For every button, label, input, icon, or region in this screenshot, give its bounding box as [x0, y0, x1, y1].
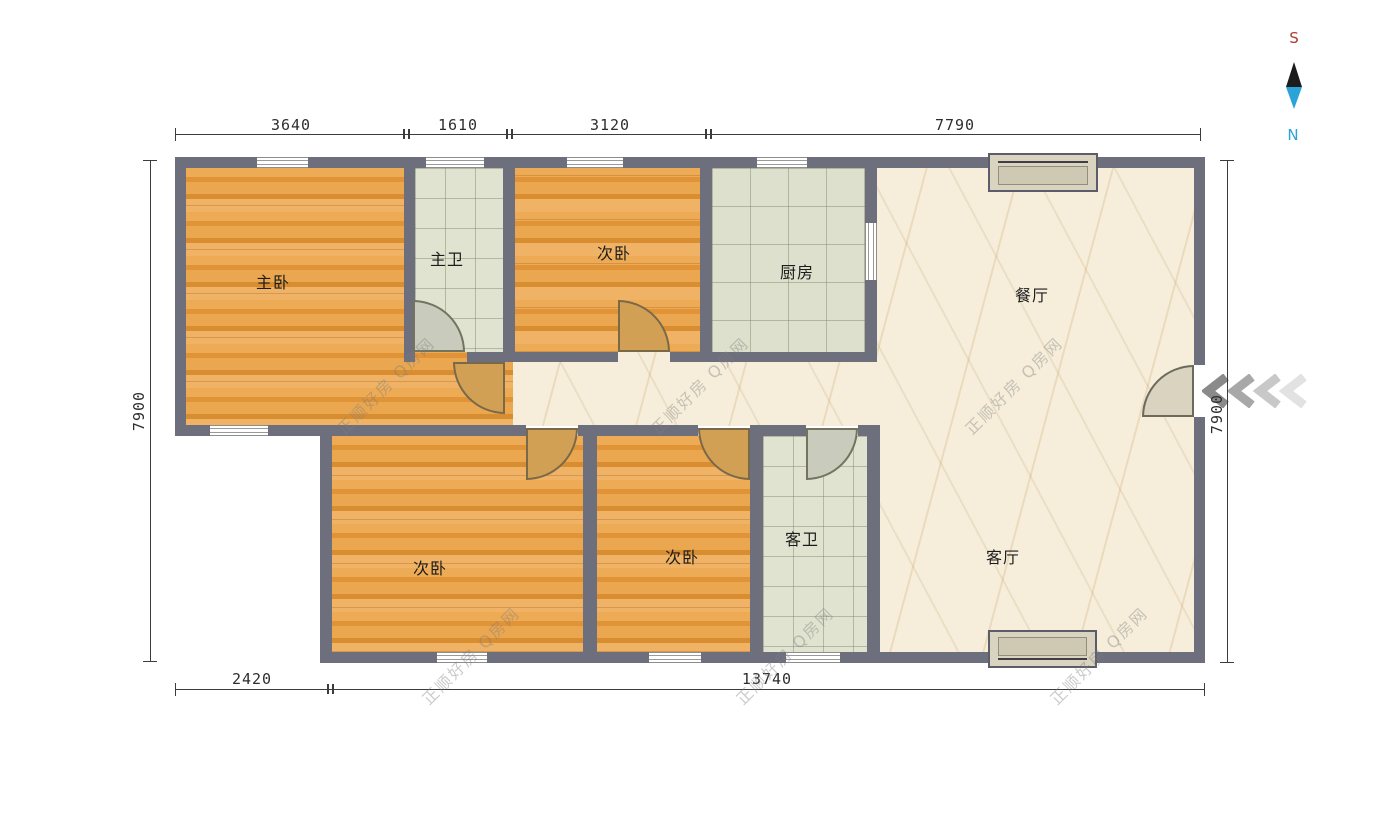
room-label-kitchen: 厨房: [780, 259, 814, 283]
dimension-left: 7900: [130, 391, 148, 431]
wall-bedroom-top-bottom-a: [515, 352, 618, 362]
wall-right-lower: [1194, 417, 1205, 663]
wall-kitchen-right-a: [865, 157, 877, 223]
wall-master-bath-right: [503, 157, 515, 362]
window-master-bath-top: [426, 157, 484, 168]
wall-mid-band-3: [750, 425, 806, 436]
wall-between-bottom-bedrooms: [583, 436, 597, 652]
compass-north-label: N: [1287, 126, 1298, 144]
compass-needle-icon: [1286, 62, 1302, 87]
room-label-bedroom-top: 次卧: [597, 240, 631, 264]
window-master-bedroom-top: [257, 157, 308, 168]
room-label-master-bedroom: 主卧: [256, 269, 290, 293]
dimension-tick: [1220, 662, 1234, 663]
dimension-bottom-1: 2420: [232, 670, 272, 688]
window-master-bedroom-bottom: [210, 425, 268, 436]
window-bedroom-top-top: [567, 157, 623, 168]
floor-plan-canvas: 主卧 主卫 次卧 厨房 餐厅 次卧 次卧 客卫 客厅 3640 1610 312…: [0, 0, 1380, 827]
dimension-tick: [175, 683, 176, 696]
dimension-line-left: [150, 160, 151, 662]
wall-mid-band-2: [578, 425, 698, 436]
room-label-bedroom-bottom-left: 次卧: [413, 555, 447, 579]
compass-needle-icon: [1286, 87, 1302, 109]
dimension-break: [327, 684, 329, 694]
wall-master-bath-bottom-b: [467, 352, 515, 362]
compass-south-label: S: [1289, 29, 1299, 47]
room-label-guest-bath: 客卫: [785, 526, 819, 550]
room-label-master-bath: 主卫: [430, 246, 464, 270]
room-label-living: 客厅: [986, 544, 1020, 568]
dimension-tick: [1200, 128, 1201, 141]
dimension-tick: [1220, 160, 1234, 161]
window-kitchen-top: [757, 157, 807, 168]
wall-bedroom-bl-left: [320, 425, 332, 663]
dimension-line-right: [1227, 160, 1228, 663]
wall-mid-band-1: [332, 425, 526, 436]
bay-window-sill: [998, 637, 1087, 656]
dimension-top-3: 3120: [590, 116, 630, 134]
dimension-tick: [143, 160, 157, 161]
bay-window-glass-line: [998, 658, 1087, 660]
dimension-tick: [175, 128, 176, 141]
dimension-break: [506, 129, 508, 139]
dimension-tick: [1204, 683, 1205, 696]
dimension-line-top: [175, 134, 1201, 135]
window-kitchen-side: [865, 223, 877, 280]
wall-guest-bath-right: [867, 425, 880, 663]
wall-master-bottom-a: [175, 425, 210, 436]
wall-bedroom-br-right: [750, 436, 763, 652]
wall-bedroom-top-right: [700, 157, 712, 362]
dimension-break: [705, 129, 707, 139]
room-label-bedroom-bottom-right: 次卧: [665, 544, 699, 568]
window-bedroom-br-bottom: [649, 652, 701, 663]
wall-left: [175, 157, 186, 435]
dimension-break: [403, 129, 405, 139]
wall-kitchen-right-b: [865, 280, 877, 352]
bay-window-dining: [988, 153, 1098, 192]
room-label-dining: 餐厅: [1015, 282, 1049, 306]
dimension-top-2: 1610: [438, 116, 478, 134]
dimension-top-1: 3640: [271, 116, 311, 134]
wall-right-upper: [1194, 157, 1205, 365]
bay-window-sill: [998, 166, 1088, 185]
bay-window-glass-line: [998, 161, 1088, 163]
dimension-right: 7900: [1208, 394, 1226, 434]
dimension-tick: [143, 661, 157, 662]
dimension-top-4: 7790: [935, 116, 975, 134]
